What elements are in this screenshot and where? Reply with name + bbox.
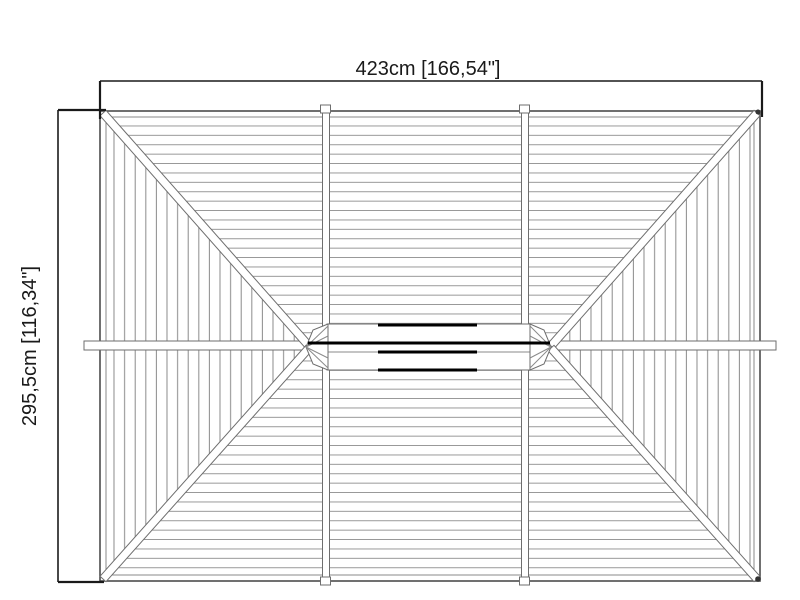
ridge-beam-assembly xyxy=(306,324,551,370)
vertical-beam-left-top-cap xyxy=(321,105,331,113)
roof-plan-drawing: 423cm [166,54"] 295,5cm [116,34"] xyxy=(0,0,800,600)
dimension-width-label: 423cm [166,54"] xyxy=(356,58,501,80)
dimension-height-label: 295,5cm [116,34"] xyxy=(19,266,41,426)
roof-plan-page: 423cm [166,54"] 295,5cm [116,34"] xyxy=(0,0,800,600)
ridge-beam-body xyxy=(327,324,530,370)
vertical-beam-left-bottom-cap xyxy=(321,577,331,585)
dimension-width: 423cm [166,54"] xyxy=(100,58,762,119)
vertical-beam-right-bottom-cap xyxy=(520,577,530,585)
vertical-beam-right-top-cap xyxy=(520,105,530,113)
corner-dot-bottom-right xyxy=(755,576,761,582)
corner-dot-top-right xyxy=(756,110,761,115)
